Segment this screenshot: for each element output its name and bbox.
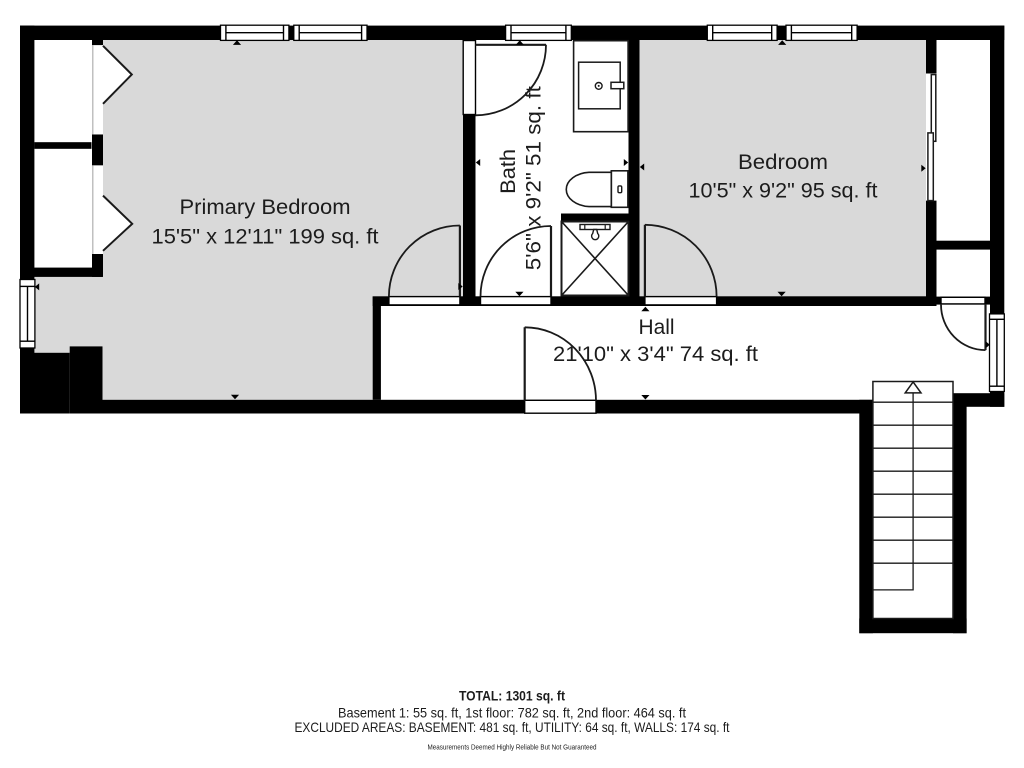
svg-text:5'6" x 9'2" 51 sq. ft: 5'6" x 9'2" 51 sq. ft [522,86,546,270]
svg-text:Bath: Bath [496,149,520,194]
svg-text:21'10" x 3'4" 74 sq. ft: 21'10" x 3'4" 74 sq. ft [553,342,758,366]
svg-text:Hall: Hall [639,315,675,339]
svg-text:Bedroom: Bedroom [738,150,828,174]
svg-text:TOTAL: 1301 sq. ft: TOTAL: 1301 sq. ft [459,688,565,704]
svg-text:10'5" x 9'2" 95 sq. ft: 10'5" x 9'2" 95 sq. ft [689,178,878,202]
svg-text:Measurements Deemed Highly Rel: Measurements Deemed Highly Reliable But … [428,743,597,752]
svg-text:15'5" x 12'11" 199 sq. ft: 15'5" x 12'11" 199 sq. ft [152,225,379,249]
svg-text:EXCLUDED AREAS: BASEMENT: 481: EXCLUDED AREAS: BASEMENT: 481 sq. ft, UT… [295,719,730,735]
svg-text:Primary Bedroom: Primary Bedroom [180,195,351,219]
